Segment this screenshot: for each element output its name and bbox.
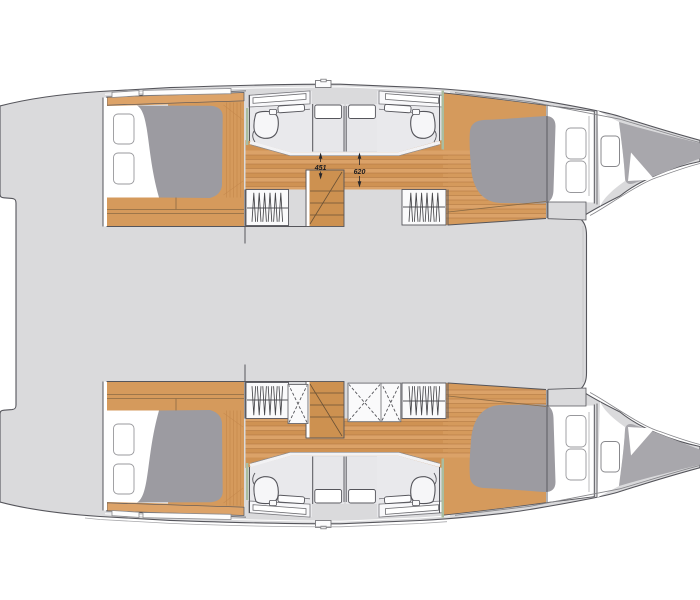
svg-text:620: 620 xyxy=(354,169,366,176)
svg-text:451: 451 xyxy=(314,165,327,172)
